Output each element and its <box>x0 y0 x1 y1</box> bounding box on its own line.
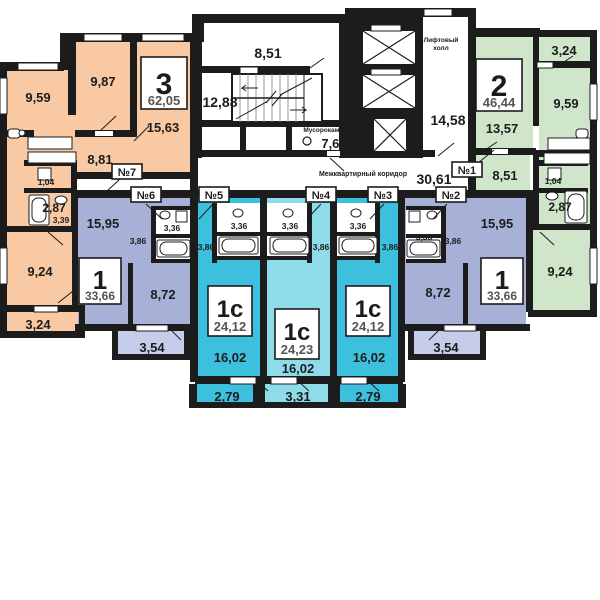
door-plate-6: №6 <box>131 187 161 202</box>
wall <box>337 256 379 260</box>
room-area-label: 15,95 <box>87 216 120 231</box>
window <box>142 34 184 41</box>
closet <box>544 153 590 164</box>
trash-area-label: 7,63 <box>321 136 346 151</box>
stairs-area-label: 12,88 <box>202 94 237 110</box>
wall <box>216 256 260 260</box>
elevator-door <box>371 25 401 31</box>
elevator-door <box>371 69 401 75</box>
door-plate-2: №2 <box>436 187 466 202</box>
room-area-label: 13,57 <box>486 121 519 136</box>
wall <box>480 331 486 360</box>
window <box>590 84 597 120</box>
door-gap <box>327 151 340 156</box>
door-number: №3 <box>374 190 392 202</box>
apartment-3-badge: 1с 24,12 <box>346 286 390 336</box>
closet <box>28 137 72 149</box>
room-area-label: 8,51 <box>492 168 517 183</box>
wall <box>398 195 405 382</box>
room-area-label: 2,87 <box>548 200 572 214</box>
wall <box>195 376 403 384</box>
common-area-label: 8,51 <box>254 45 281 61</box>
door-plate-3: №3 <box>368 187 398 202</box>
apartment-total-area: 33,66 <box>85 289 115 303</box>
balcony-area-label: 3,54 <box>433 340 459 355</box>
bathtub-icon <box>160 242 187 255</box>
room-area-label: 3,86 <box>382 242 399 252</box>
door-number: №6 <box>137 190 155 202</box>
wall <box>406 206 441 210</box>
door-gap <box>492 149 508 154</box>
room-area-label: 16,02 <box>214 350 247 365</box>
door-plate-7: №7 <box>112 164 142 179</box>
wall <box>528 224 597 230</box>
balcony-area-label: 3,31 <box>285 389 310 404</box>
door-swing <box>310 58 324 68</box>
wall <box>0 226 78 232</box>
window <box>0 78 7 114</box>
closet <box>28 152 76 163</box>
wall <box>68 41 76 115</box>
wall <box>155 206 190 210</box>
wall <box>345 8 476 17</box>
door-gap <box>95 131 113 136</box>
door-number: №4 <box>312 190 331 202</box>
balcony-area-label: 2,79 <box>355 389 380 404</box>
wall <box>463 263 468 324</box>
apartment-7-badge: 3 62,05 <box>141 57 187 109</box>
wall <box>330 195 337 382</box>
window <box>240 67 258 74</box>
wall <box>528 310 597 317</box>
balcony-area-label: 3,24 <box>551 43 577 58</box>
floor-plan-drawing: 9,59 9,87 15,63 8,81 1,04 2,87 3,39 9,24… <box>0 0 600 600</box>
wall <box>130 33 137 133</box>
room-area-label: 1,04 <box>38 177 55 187</box>
wall <box>79 305 85 338</box>
room-area-label: 3,36 <box>231 221 248 231</box>
room-area-label: 3,36 <box>416 232 433 242</box>
room-area-label: 9,24 <box>27 264 53 279</box>
room-area-label: 16,02 <box>282 361 315 376</box>
balcony-door-window <box>136 325 168 331</box>
wall <box>441 206 446 263</box>
window <box>18 63 58 70</box>
room-area-label: 9,87 <box>90 74 115 89</box>
wall <box>240 124 246 154</box>
wall <box>190 195 198 382</box>
apartment-total-area: 33,66 <box>487 289 517 303</box>
room-area-label: 3,86 <box>130 236 147 246</box>
wall <box>468 28 540 37</box>
wall <box>216 232 260 236</box>
bathtub-icon <box>273 239 306 252</box>
floor-plan: 9,59 9,87 15,63 8,81 1,04 2,87 3,39 9,24… <box>0 0 600 600</box>
wall <box>286 124 292 154</box>
toilet-icon <box>576 129 588 138</box>
room-area-label: 3,86 <box>198 242 215 252</box>
door-number: №7 <box>118 167 136 179</box>
wall <box>267 232 311 236</box>
wall <box>526 195 533 312</box>
apartment-5-badge: 1с 24,12 <box>208 286 252 336</box>
apartment-2-badge: 1 33,66 <box>481 258 523 304</box>
door-plate-4: №4 <box>306 187 336 202</box>
wall <box>533 30 597 37</box>
room-area-label: 16,02 <box>353 350 386 365</box>
apartment-total-area: 46,44 <box>483 95 516 110</box>
door-swing <box>330 158 344 171</box>
wall <box>184 331 190 360</box>
bathtub-icon <box>410 242 437 255</box>
room-area-label: 8,81 <box>87 152 112 167</box>
room-area-label: 3,36 <box>164 223 181 233</box>
wall <box>155 234 190 238</box>
room-area-label: 9,24 <box>547 264 573 279</box>
lift-hall-label: Лифтовый <box>424 36 459 44</box>
apartment-total-area: 24,12 <box>214 319 247 334</box>
room-area-label: 9,59 <box>25 90 50 105</box>
wall <box>533 66 539 126</box>
room-area-label: 3,86 <box>445 236 462 246</box>
door-plate-5: №5 <box>199 187 229 202</box>
room-area-label: 3,36 <box>350 221 367 231</box>
window <box>0 248 7 284</box>
room-area-label: 2,87 <box>42 201 66 215</box>
window <box>590 248 597 284</box>
door-number: №2 <box>442 190 460 202</box>
bathtub-icon <box>222 239 255 252</box>
apartment-4-badge: 1с 24,23 <box>275 309 319 359</box>
bathtub-icon <box>342 239 374 252</box>
washer-icon <box>409 211 420 222</box>
washer-icon <box>176 211 187 222</box>
room-area-label: 3,36 <box>282 221 299 231</box>
corridor-label: Межквартирный коридор <box>319 170 407 178</box>
sink-icon <box>233 209 243 217</box>
balcony-area-label: 3,24 <box>25 317 51 332</box>
balcony-door-window <box>271 377 297 384</box>
door-number: №1 <box>458 165 476 177</box>
lift-hall-label: холл <box>433 45 449 52</box>
room-area-label: 1,04 <box>545 176 562 186</box>
room-area-label: 8,72 <box>150 287 175 302</box>
trash-room-label: Мусорокамера <box>303 127 351 134</box>
wall <box>195 14 347 23</box>
balcony-door-window <box>341 377 367 384</box>
room-area-label: 3,39 <box>53 215 70 225</box>
sink-icon <box>351 209 361 217</box>
sink-icon <box>283 209 293 217</box>
apartment-total-area: 24,12 <box>352 319 385 334</box>
trash-chute-icon <box>303 137 311 145</box>
door-number: №5 <box>205 190 223 202</box>
balcony-door-window <box>444 325 476 331</box>
window <box>424 9 452 16</box>
toilet-icon <box>19 130 25 136</box>
apartment-total-area: 24,23 <box>281 342 314 357</box>
wall <box>128 263 133 324</box>
corridor-area-label: 30,61 <box>416 171 451 187</box>
balcony-area-label: 2,79 <box>214 389 239 404</box>
balcony-door-window <box>34 306 58 312</box>
apartment-1-badge: 2 46,44 <box>476 59 522 111</box>
closet <box>548 138 590 150</box>
balcony-area-label: 3,54 <box>139 340 165 355</box>
lift-hall-area-label: 14,58 <box>430 112 465 128</box>
door-plate-1: №1 <box>452 162 482 177</box>
wall <box>328 384 340 403</box>
wall <box>190 33 198 193</box>
toilet-icon <box>8 129 20 138</box>
room-area-label: 3,86 <box>313 242 330 252</box>
room-area-label: 15,95 <box>481 216 514 231</box>
sink-icon <box>160 211 170 219</box>
room-area-label: 15,63 <box>147 120 180 135</box>
balcony-door-window <box>230 377 256 384</box>
wall <box>260 195 267 382</box>
wall <box>195 150 345 157</box>
wall <box>155 259 190 263</box>
wall <box>406 259 441 263</box>
wall <box>24 188 77 193</box>
wall <box>267 256 311 260</box>
apartment-total-area: 62,05 <box>148 93 181 108</box>
wall <box>337 232 379 236</box>
room-area-label: 9,59 <box>553 96 578 111</box>
room-area-label: 8,72 <box>425 285 450 300</box>
sink-icon <box>546 192 558 200</box>
stairs <box>232 74 322 122</box>
wall <box>0 331 85 338</box>
balcony-door-window <box>537 62 553 68</box>
door-swing <box>438 143 454 156</box>
apartment-6-badge: 1 33,66 <box>79 258 121 304</box>
window <box>84 34 122 41</box>
sink-icon <box>427 211 437 219</box>
